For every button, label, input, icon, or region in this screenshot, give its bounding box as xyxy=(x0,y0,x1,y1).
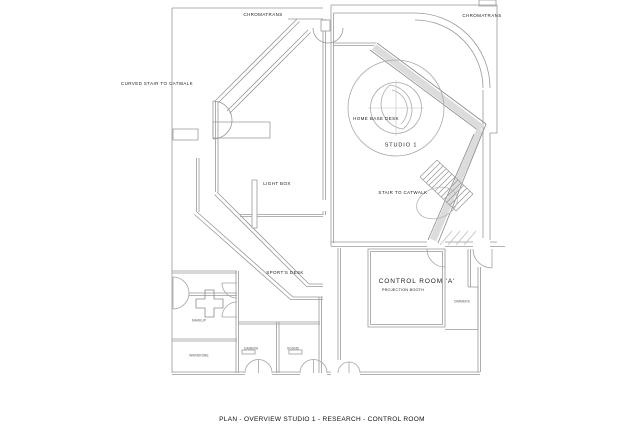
projection-booth-label: PROJECTION BOOTH xyxy=(382,289,424,293)
floor-plan-page: CHROMATRANS CHROMATRANS CURVED STAIR TO … xyxy=(0,0,640,427)
dimmers-room-label: DIMMERS xyxy=(454,300,470,303)
drawing-title: PLAN - OVERVIEW STUDIO 1 - RESEARCH - CO… xyxy=(219,417,425,424)
studio1-label: STUDIO 1 xyxy=(385,143,418,149)
wall-pier xyxy=(173,129,198,140)
control-room-door-swings xyxy=(338,249,492,373)
chromatrans-label-right: CHROMATRANS xyxy=(462,14,501,19)
studio1-walls xyxy=(313,0,505,247)
room-door-swings xyxy=(173,277,327,373)
light-box-label: LIGHT BOX xyxy=(263,182,291,187)
sports-desk-label: SPORT'S DESK xyxy=(266,271,304,276)
chromatrans-label-left: CHROMATRANS xyxy=(243,13,282,18)
floor-plan-drawing xyxy=(0,0,640,427)
camera-room-label: CAMERA xyxy=(244,347,258,350)
light-box-element xyxy=(252,180,257,228)
control-room-walls xyxy=(338,248,481,375)
stair-to-catwalk-label: STAIR TO CATWALK xyxy=(378,191,427,196)
first-aid-cross-symbol xyxy=(196,290,223,317)
makeup-room-label: MAKEUP xyxy=(192,319,206,322)
sound-room-label: SOUND xyxy=(287,347,299,350)
curved-stair-label: CURVED STAIR TO CATWALK xyxy=(121,82,193,87)
curved-stair-to-catwalk xyxy=(213,101,270,139)
control-room-label: CONTROL ROOM 'A' xyxy=(379,279,456,286)
wardrobe-room-label: WARDROBE xyxy=(189,354,208,357)
home-base-desk-label: HOME BASE DESK xyxy=(353,117,399,122)
